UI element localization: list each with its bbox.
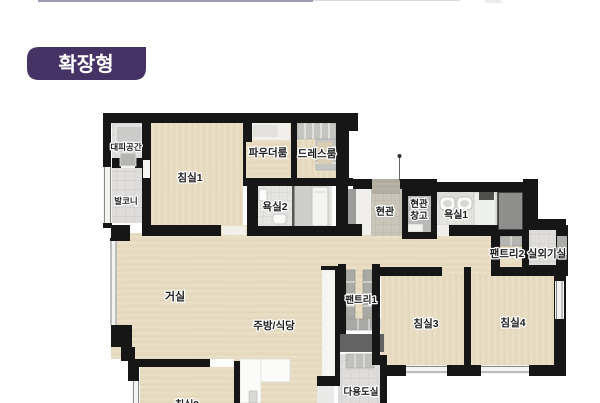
svg-text:현관: 현관 — [376, 205, 395, 218]
svg-text:침실1: 침실1 — [177, 171, 202, 184]
svg-text:확장형: 확장형 — [58, 52, 113, 76]
svg-text:실외기실: 실외기실 — [528, 247, 567, 260]
svg-text:현관: 현관 — [410, 198, 428, 210]
svg-text:침실4: 침실4 — [500, 316, 525, 329]
svg-text:발코니: 발코니 — [114, 196, 137, 206]
svg-text:침실3: 침실3 — [413, 317, 438, 330]
svg-text:대피공간: 대피공간 — [110, 142, 141, 152]
svg-text:창고: 창고 — [410, 210, 428, 222]
svg-text:팬트리2: 팬트리2 — [490, 247, 525, 260]
svg-text:거실: 거실 — [165, 289, 185, 303]
svg-text:파우더룸: 파우더룸 — [249, 146, 288, 159]
svg-text:다용도실: 다용도실 — [344, 386, 379, 398]
svg-text:욕실1: 욕실1 — [444, 208, 468, 221]
svg-text:주방/식당: 주방/식당 — [253, 319, 295, 332]
svg-text:드레스룸: 드레스룸 — [298, 147, 337, 160]
svg-text:팬트리1: 팬트리1 — [345, 294, 377, 306]
svg-text:욕실2: 욕실2 — [262, 200, 287, 213]
